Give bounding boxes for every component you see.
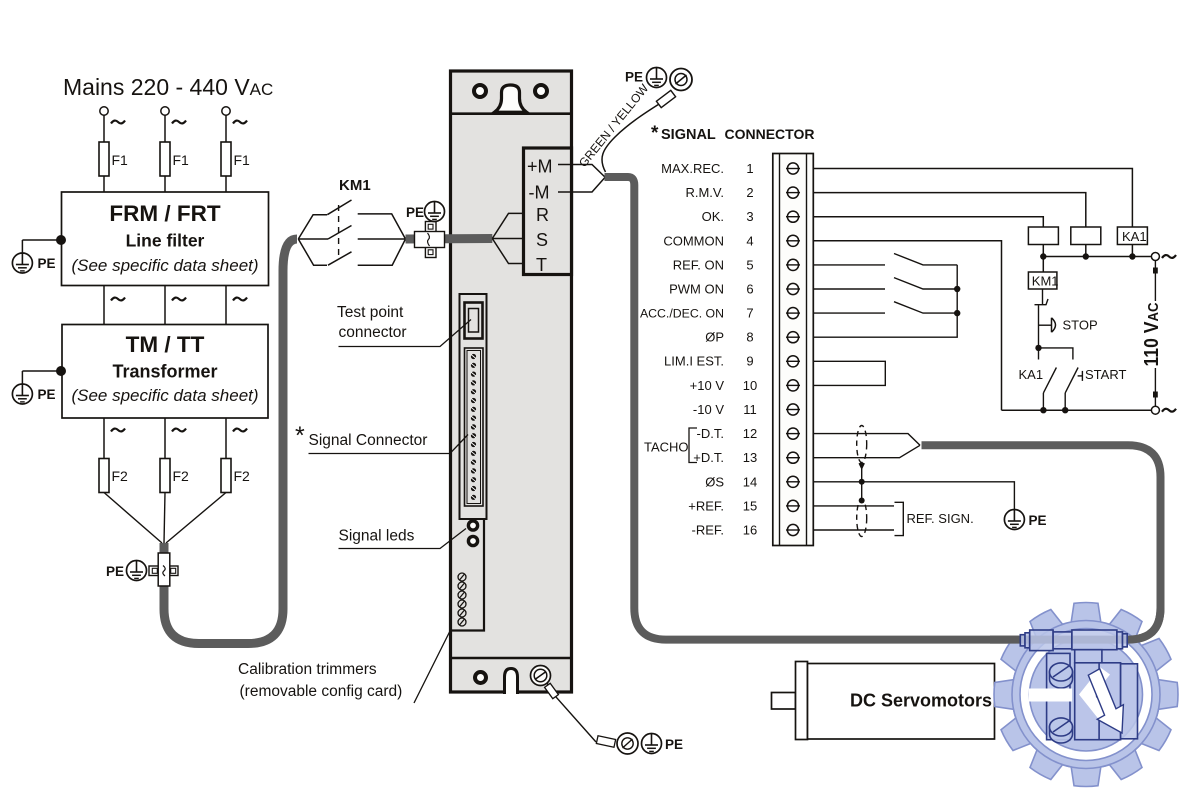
svg-text:TM / TT: TM / TT: [126, 332, 205, 357]
svg-text:KM1: KM1: [1032, 274, 1059, 289]
svg-text:2: 2: [746, 185, 753, 200]
svg-text:START: START: [1085, 367, 1126, 382]
svg-text:3: 3: [746, 209, 753, 224]
svg-text:+REF.: +REF.: [688, 499, 724, 514]
svg-text:(See specific data sheet): (See specific data sheet): [71, 256, 258, 275]
svg-text:110 VAC: 110 VAC: [1141, 302, 1163, 366]
svg-text:ACC./DEC. ON: ACC./DEC. ON: [640, 307, 724, 321]
svg-text:PE: PE: [38, 256, 56, 271]
svg-text:Transformer: Transformer: [112, 362, 217, 382]
svg-text:Line filter: Line filter: [126, 231, 205, 251]
svg-text:10: 10: [743, 378, 757, 393]
svg-text:DC Servomotors: DC Servomotors: [850, 691, 992, 711]
svg-text:1: 1: [746, 161, 753, 176]
svg-text:ØS: ØS: [705, 475, 724, 490]
svg-text:CONNECTOR: CONNECTOR: [725, 126, 815, 142]
svg-text:14: 14: [743, 475, 757, 490]
svg-text:PE: PE: [406, 205, 424, 220]
svg-text:-10 V: -10 V: [693, 402, 724, 417]
svg-text:*: *: [295, 422, 305, 450]
svg-text:-D.T.: -D.T.: [697, 426, 724, 441]
svg-text:PE: PE: [625, 70, 643, 85]
svg-text:13: 13: [743, 450, 757, 465]
svg-text:KA1: KA1: [1019, 367, 1044, 382]
svg-text:KA1: KA1: [1122, 229, 1147, 244]
svg-text:PE: PE: [106, 564, 124, 579]
svg-text:T: T: [536, 255, 547, 275]
svg-text:PE: PE: [38, 387, 56, 402]
svg-text:7: 7: [746, 306, 753, 321]
svg-text:Signal leds: Signal leds: [339, 528, 415, 545]
svg-text:16: 16: [743, 523, 757, 538]
svg-text:MAX.REC.: MAX.REC.: [661, 161, 724, 176]
svg-text:+D.T.: +D.T.: [693, 450, 724, 465]
svg-text:COMMON: COMMON: [663, 234, 724, 249]
svg-text:TACHO: TACHO: [644, 440, 689, 455]
svg-text:OK.: OK.: [702, 209, 724, 224]
svg-text:S: S: [536, 230, 548, 250]
svg-text:SIGNAL: SIGNAL: [661, 127, 716, 143]
svg-text:F1: F1: [112, 152, 129, 168]
svg-text:STOP: STOP: [1063, 318, 1098, 333]
svg-text:5: 5: [746, 258, 753, 273]
svg-text:Test point: Test point: [337, 304, 404, 321]
svg-text:Mains 220 - 440 VAC: Mains 220 - 440 VAC: [63, 74, 273, 100]
svg-text:Calibration trimmers: Calibration trimmers: [238, 661, 377, 678]
svg-text:+10 V: +10 V: [690, 378, 725, 393]
svg-text:-M: -M: [529, 183, 550, 203]
svg-text:-REF.: -REF.: [692, 523, 725, 538]
svg-text:(See specific data sheet): (See specific data sheet): [71, 386, 258, 405]
svg-text:KM1: KM1: [339, 177, 371, 194]
svg-text:12: 12: [743, 426, 757, 441]
svg-text:FRM / FRT: FRM / FRT: [109, 201, 220, 226]
svg-text:LIM.I EST.: LIM.I EST.: [664, 354, 724, 369]
svg-text:4: 4: [746, 234, 753, 249]
svg-text:REF. SIGN.: REF. SIGN.: [907, 511, 974, 526]
svg-text:F2: F2: [112, 468, 129, 484]
svg-text:R: R: [536, 205, 549, 225]
svg-text:REF. ON: REF. ON: [673, 258, 724, 273]
svg-text:F1: F1: [173, 152, 190, 168]
svg-text:ØP: ØP: [705, 330, 724, 345]
svg-text:15: 15: [743, 499, 757, 514]
svg-text:F2: F2: [173, 468, 190, 484]
svg-text:R.M.V.: R.M.V.: [685, 185, 724, 200]
svg-text:11: 11: [743, 402, 757, 417]
svg-text:GREEN / YELLOW: GREEN / YELLOW: [576, 81, 652, 170]
svg-text:F1: F1: [234, 152, 251, 168]
svg-text:Signal Connector: Signal Connector: [309, 432, 428, 449]
svg-text:PWM ON: PWM ON: [669, 282, 724, 297]
svg-text:+M: +M: [527, 157, 553, 177]
svg-text:*: *: [651, 123, 659, 144]
svg-text:(removable config card): (removable config card): [240, 683, 403, 700]
svg-text:9: 9: [746, 354, 753, 369]
svg-text:6: 6: [746, 282, 753, 297]
svg-text:PE: PE: [1029, 513, 1047, 528]
svg-text:connector: connector: [339, 324, 407, 341]
svg-text:F2: F2: [234, 468, 251, 484]
svg-text:8: 8: [746, 330, 753, 345]
svg-text:PE: PE: [665, 737, 683, 752]
